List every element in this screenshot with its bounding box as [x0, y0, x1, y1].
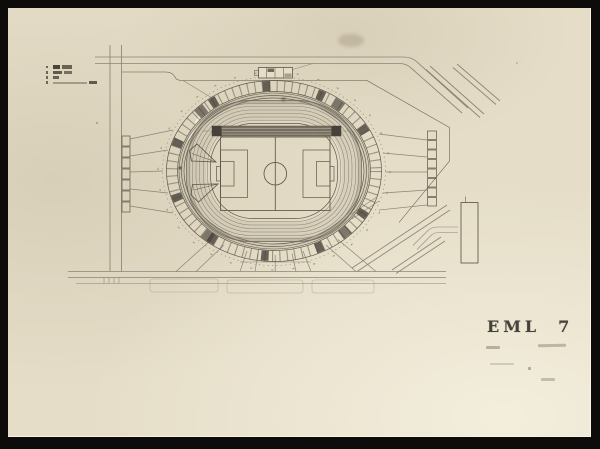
plate-number: 7 [558, 317, 569, 336]
side-strip-right [428, 131, 437, 206]
photo-frame: EML7 [0, 0, 600, 449]
pencil-smudge [486, 346, 500, 349]
entrance-pavilion [255, 64, 314, 79]
pencil-smudge [528, 367, 531, 370]
football-field [217, 137, 335, 211]
plate-label: EML7 [487, 317, 569, 336]
grandstand [202, 126, 351, 136]
goal-right [330, 167, 334, 182]
side-strip-left [122, 136, 130, 212]
pencil-smudge [490, 363, 514, 365]
goal-left [217, 167, 221, 182]
pencil-smudge [541, 378, 555, 381]
plate-label-text: EML [487, 317, 540, 336]
pencil-smudge [538, 344, 566, 347]
running-track [187, 101, 362, 242]
site-plan-drawing [0, 0, 600, 449]
outbuilding [461, 197, 478, 264]
plan-mark [179, 167, 182, 170]
bottom-panels [150, 279, 374, 293]
